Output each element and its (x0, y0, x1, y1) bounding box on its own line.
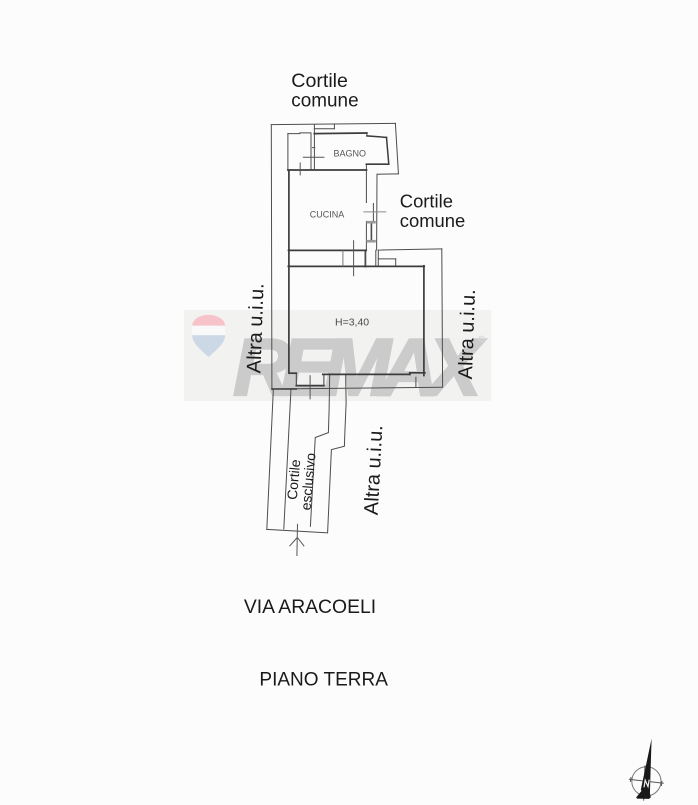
svg-text:REMAX: REMAX (233, 323, 486, 413)
svg-text:H=3,40: H=3,40 (335, 317, 369, 329)
svg-text:comune: comune (400, 210, 465, 231)
svg-text:PIANO TERRA: PIANO TERRA (259, 669, 388, 691)
svg-text:Cortile: Cortile (400, 191, 453, 212)
svg-text:CUCINA: CUCINA (310, 209, 345, 219)
svg-text:VIA ARACOELI: VIA ARACOELI (244, 596, 376, 618)
svg-text:Altra u.i.u.: Altra u.i.u. (243, 283, 268, 374)
svg-text:comune: comune (291, 90, 358, 112)
svg-text:Altra u.i.u.: Altra u.i.u. (455, 289, 480, 380)
svg-text:BAGNO: BAGNO (334, 148, 367, 158)
svg-text:R: R (480, 337, 483, 342)
svg-text:Altra u.i.u.: Altra u.i.u. (361, 425, 388, 516)
